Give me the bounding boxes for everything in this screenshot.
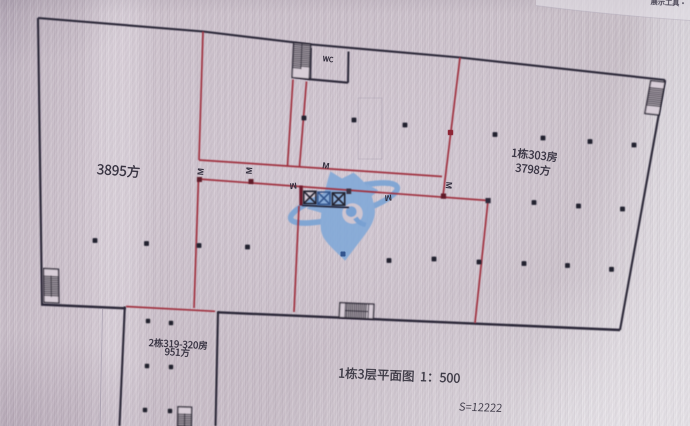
svg-text:M: M bbox=[322, 160, 330, 171]
svg-text:M: M bbox=[244, 167, 255, 175]
svg-text:M: M bbox=[384, 193, 392, 204]
svg-text:M: M bbox=[289, 181, 297, 192]
svg-text:M: M bbox=[444, 181, 455, 189]
svg-text:M: M bbox=[195, 168, 206, 176]
